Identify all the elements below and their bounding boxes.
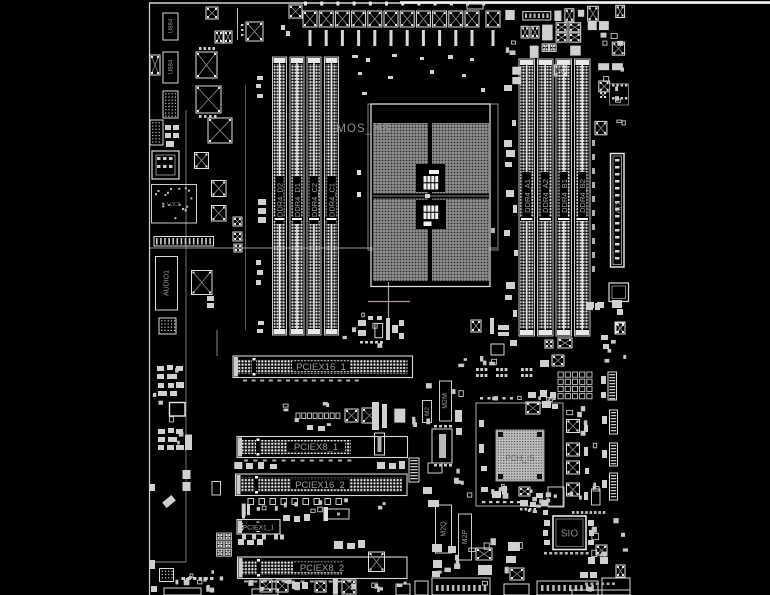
svg-text:DDR4_B2: DDR4_B2	[578, 179, 587, 213]
svg-text:DDR4_A1: DDR4_A1	[523, 179, 532, 213]
svg-text:DDR4_B1: DDR4_B1	[560, 179, 569, 213]
svg-text:PCH_IS: PCH_IS	[506, 454, 535, 463]
svg-text:PCIEX1_1: PCIEX1_1	[243, 525, 275, 532]
svg-text:ATX: ATX	[616, 200, 623, 213]
svg-text:DDR4_C2: DDR4_C2	[310, 183, 319, 217]
svg-text:M2M: M2M	[442, 393, 449, 409]
svg-text:DDR4_D1: DDR4_D1	[293, 183, 302, 217]
svg-text:PCIEX16_2: PCIEX16_2	[295, 480, 345, 491]
svg-text:AUDIO1: AUDIO1	[164, 270, 171, 296]
svg-text:PCIEX16_1: PCIEX16_1	[296, 362, 346, 373]
svg-text:M2P: M2P	[462, 529, 469, 544]
svg-text:PCIEX8_1: PCIEX8_1	[294, 442, 338, 453]
svg-text:U884: U884	[169, 59, 175, 74]
svg-text:M2Q: M2Q	[441, 521, 448, 537]
svg-text:U3C5: U3C5	[167, 202, 181, 208]
svg-text:PCIEX8_2: PCIEX8_2	[300, 563, 344, 574]
svg-text:DDR4_A2: DDR4_A2	[541, 179, 550, 213]
svg-text:U884: U884	[169, 18, 175, 33]
svg-text:MOS_HS: MOS_HS	[336, 123, 391, 135]
svg-text:M2: M2	[424, 407, 431, 416]
svg-text:DDR4_C1: DDR4_C1	[328, 183, 337, 217]
svg-text:SIO: SIO	[561, 529, 578, 540]
svg-text:DDR4_D2: DDR4_D2	[276, 183, 285, 217]
